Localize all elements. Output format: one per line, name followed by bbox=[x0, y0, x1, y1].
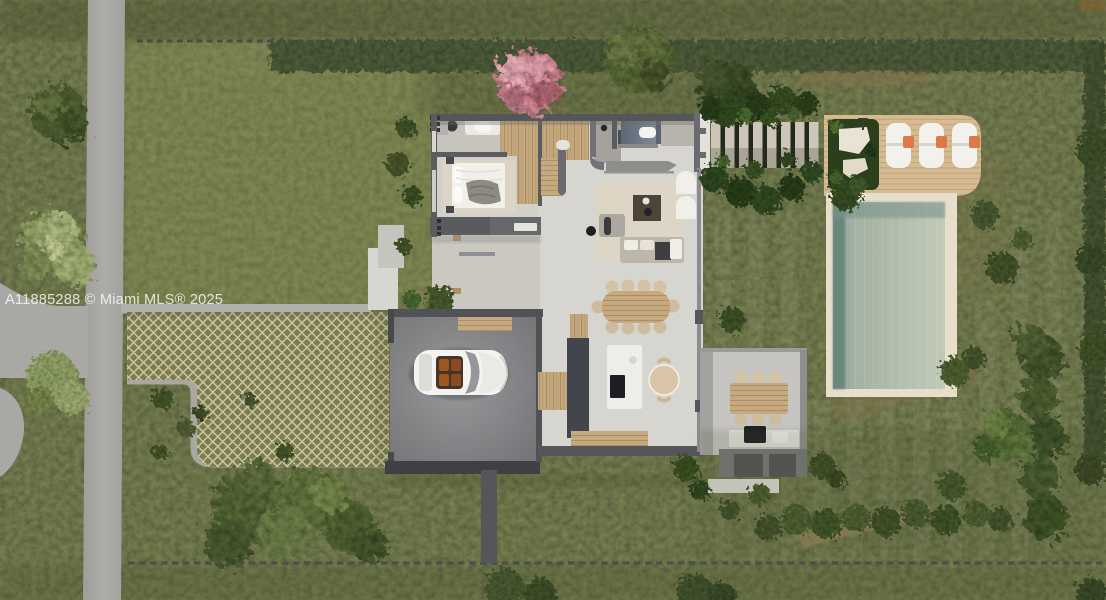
svg-text:A11885288 © Miami MLS® 2025: A11885288 © Miami MLS® 2025 bbox=[5, 292, 223, 308]
